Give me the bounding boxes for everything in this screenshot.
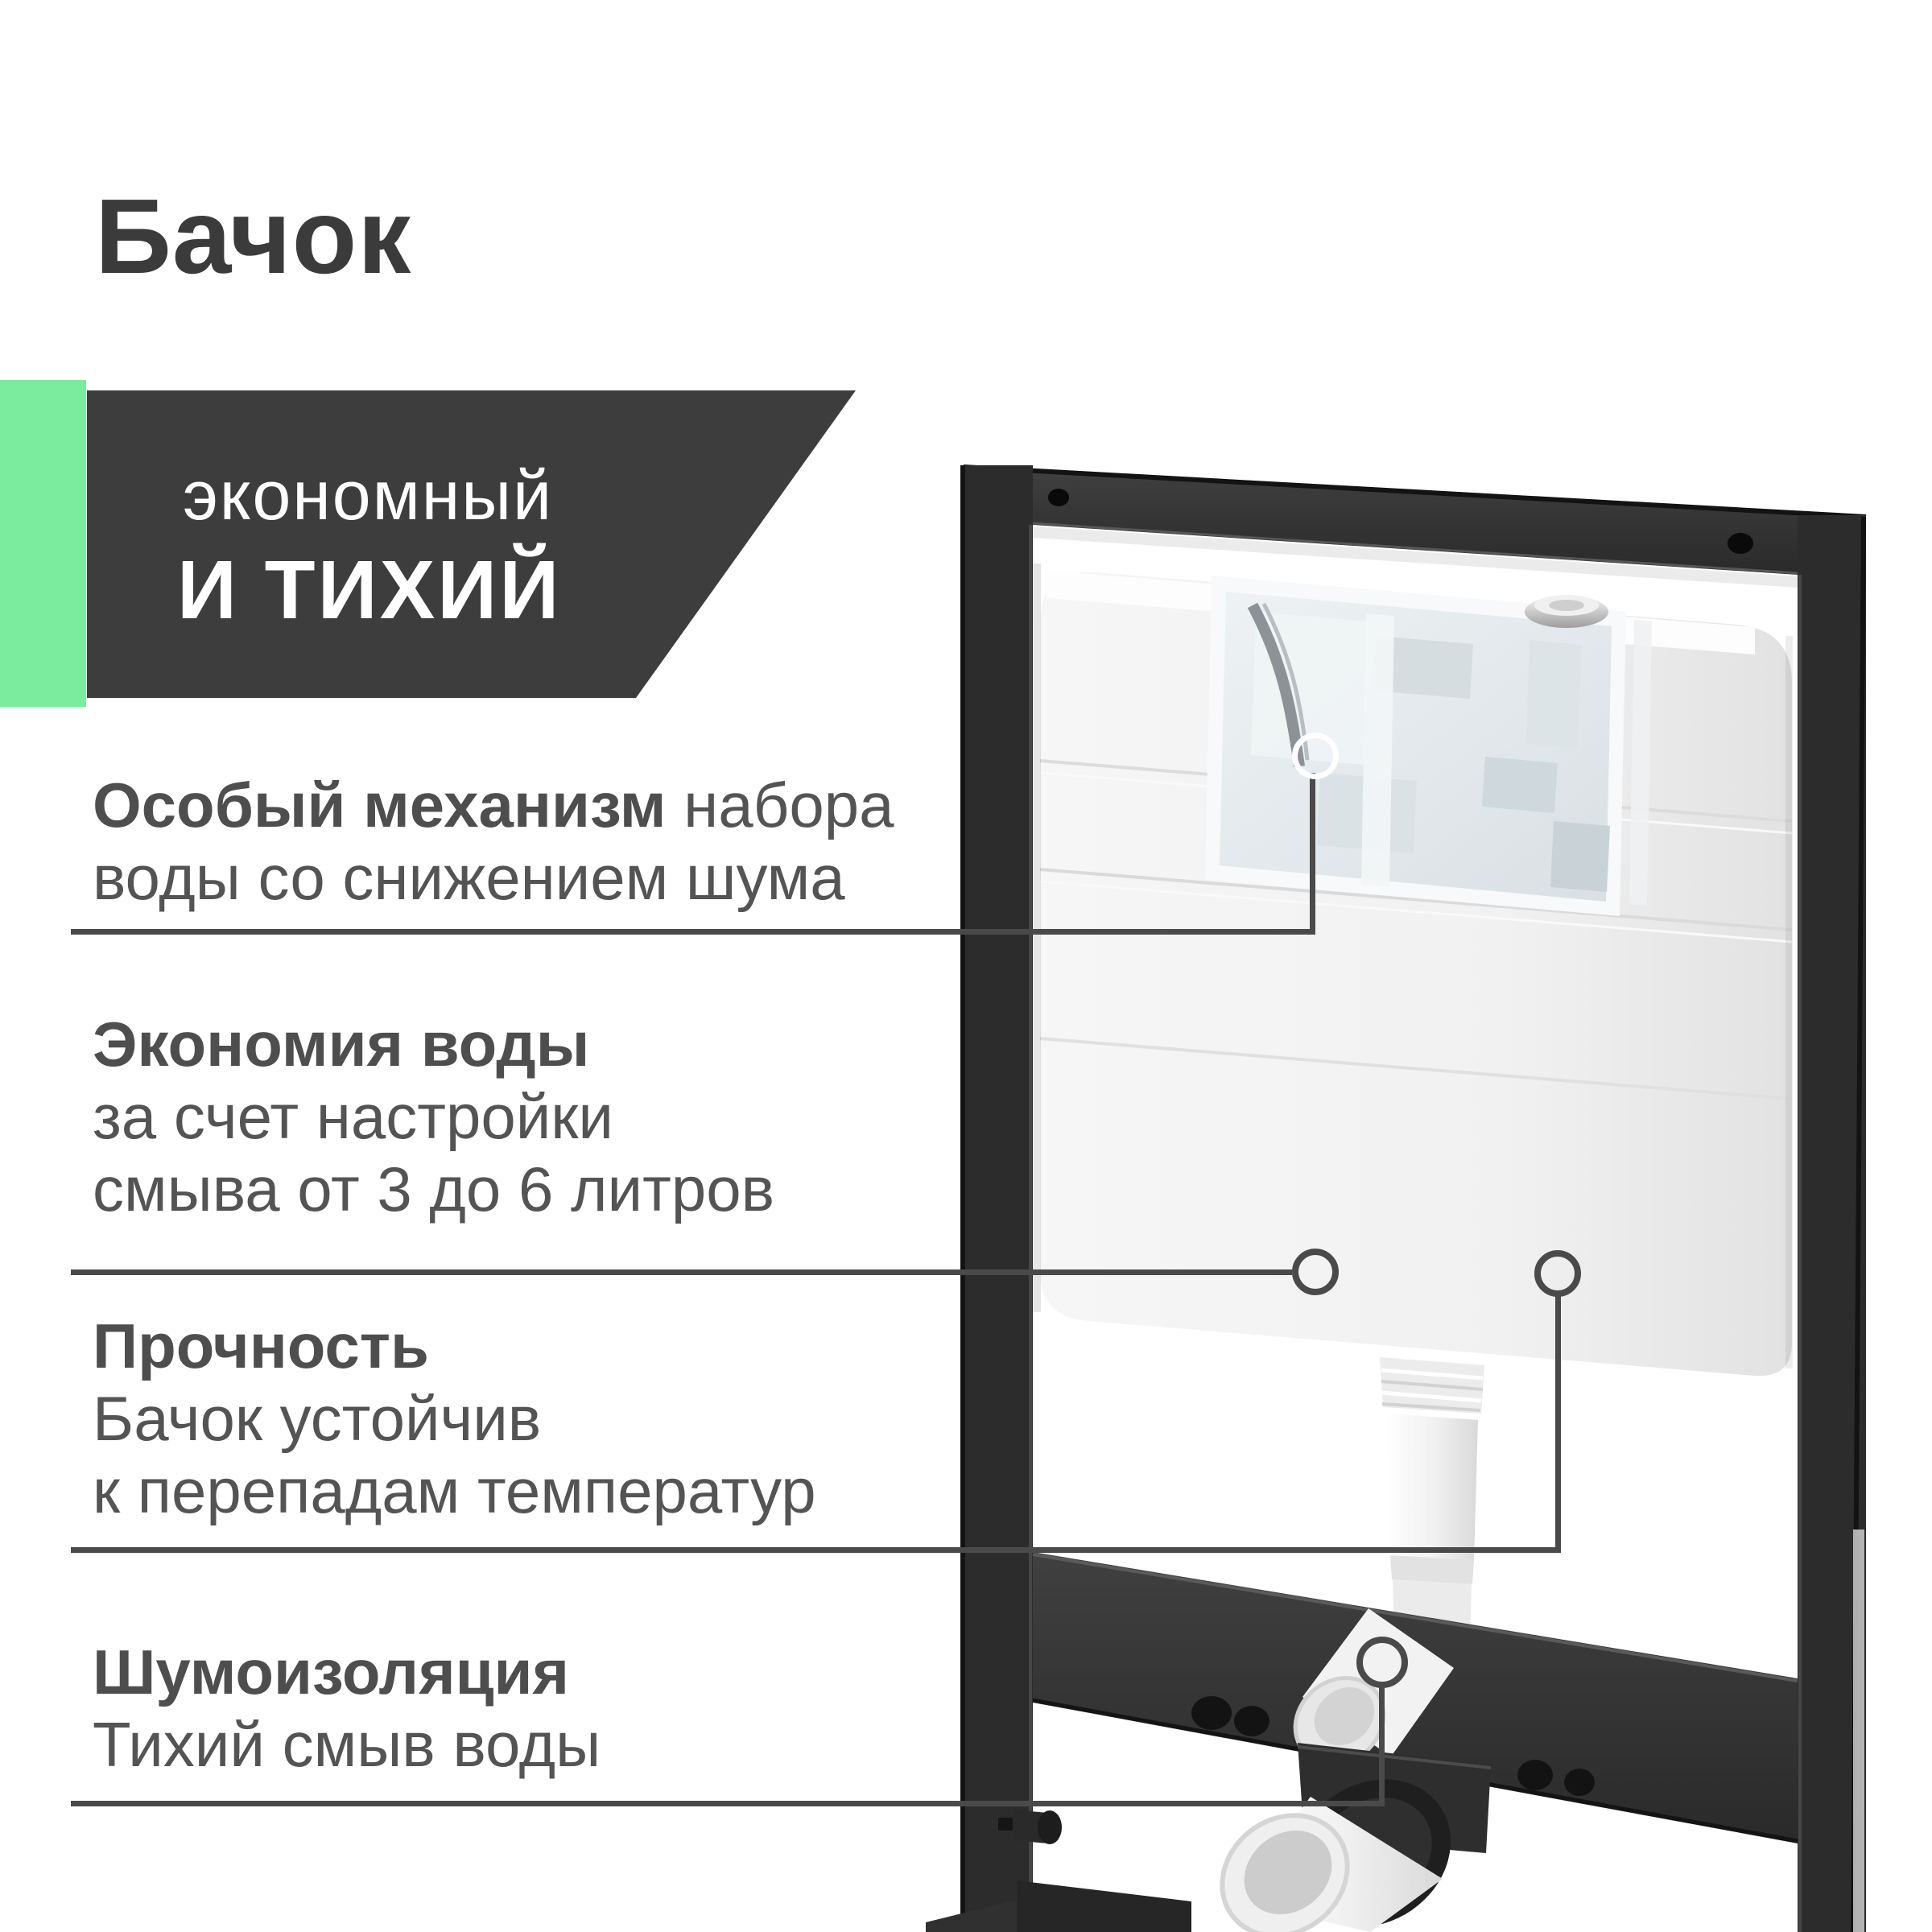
flush-pipe	[1380, 1357, 1484, 1646]
callout-ring-durability	[1534, 1250, 1581, 1297]
feature-text-line: Прочность	[93, 1310, 816, 1382]
feature-badge: экономный и тихий	[87, 390, 856, 698]
feature-text-line: Экономия воды	[93, 1008, 774, 1080]
callout-ring-mechanism	[1292, 733, 1339, 779]
feature-item-durability: Прочность Бачок устойчив к перепадам тем…	[93, 1310, 816, 1527]
feature-text-line: за счет настройки	[93, 1080, 774, 1153]
product-photo	[926, 443, 1932, 1932]
feature-text-line: воды со снижением шума	[93, 841, 894, 914]
callout-line-durability	[71, 1547, 1561, 1553]
mounting-hole	[1728, 533, 1753, 554]
callout-line-noise-v	[1379, 1682, 1385, 1802]
crossbar-hole	[1234, 1706, 1269, 1736]
badge-text-line2: и тихий	[177, 548, 561, 631]
callout-ring-noise	[1356, 1637, 1408, 1688]
feature-item-water-saving: Экономия воды за счет настройки смыва от…	[93, 1008, 774, 1225]
product-infographic: { "page": { "title": "Бачок" }, "badge":…	[0, 0, 1932, 1932]
feature-text-line: Бачок устойчив	[93, 1382, 816, 1455]
feature-text-line: Особый механизм набора	[93, 769, 894, 841]
feature-item-noise-insulation: Шумоизоляция Тихий смыв воды	[93, 1636, 601, 1781]
callout-line-noise	[71, 1801, 1385, 1806]
inspection-window	[1205, 576, 1652, 916]
callout-line-water-saving	[71, 1269, 1292, 1275]
frame-left-leg	[960, 465, 1033, 1932]
feature-text-line: к перепадам температур	[93, 1455, 816, 1527]
badge-text-line1: экономный	[183, 461, 553, 530]
fill-valve-cap	[1525, 595, 1608, 628]
mounting-hole	[1048, 489, 1069, 506]
callout-line-mechanism	[71, 929, 1315, 935]
callout-line-durability-v	[1555, 1296, 1561, 1549]
crossbar-hole	[1191, 1696, 1232, 1730]
callout-ring-water-saving	[1292, 1249, 1339, 1295]
badge-accent-bar	[0, 380, 86, 707]
feature-text-line: Тихий смыв воды	[93, 1708, 601, 1781]
feature-item-mechanism: Особый механизм набора воды со снижением…	[93, 769, 894, 914]
page-title: Бачок	[95, 184, 411, 290]
feature-text-line: смыва от 3 до 6 литров	[93, 1153, 774, 1225]
callout-line-mechanism-v	[1310, 773, 1315, 935]
feature-text-line: Шумоизоляция	[93, 1636, 601, 1708]
crossbar-hole	[1517, 1760, 1553, 1790]
crossbar-hole	[1564, 1769, 1595, 1796]
